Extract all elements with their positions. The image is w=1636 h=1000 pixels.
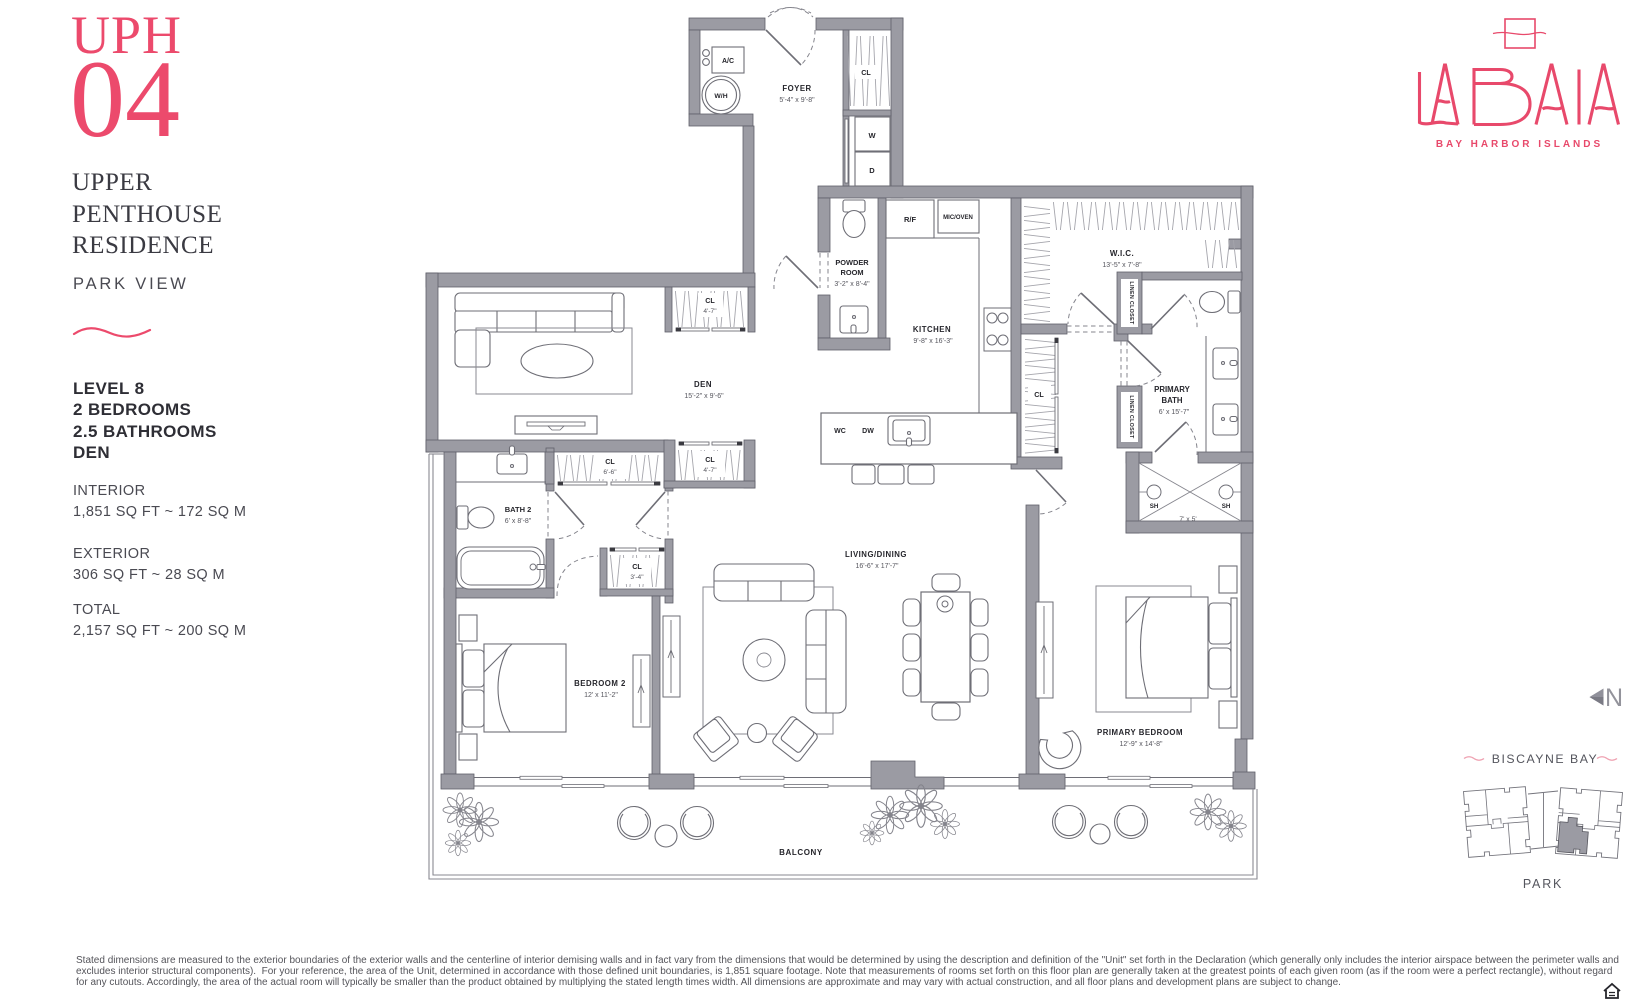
svg-text:SH: SH	[1222, 503, 1231, 510]
svg-text:4'-7": 4'-7"	[703, 467, 717, 474]
svg-text:WC: WC	[834, 428, 846, 435]
svg-text:W.I.C.: W.I.C.	[1110, 249, 1134, 258]
svg-text:FOYER: FOYER	[782, 84, 811, 93]
svg-text:CL: CL	[605, 457, 615, 466]
svg-text:13'-5" x 7'-8": 13'-5" x 7'-8"	[1102, 262, 1142, 269]
svg-text:9'-8" x 16'-3": 9'-8" x 16'-3"	[913, 338, 953, 345]
svg-text:LINEN CLOSET: LINEN CLOSET	[1128, 281, 1134, 325]
svg-text:BALCONY: BALCONY	[779, 848, 823, 857]
svg-text:PRIMARY BEDROOM: PRIMARY BEDROOM	[1097, 728, 1183, 737]
svg-text:3'-4": 3'-4"	[630, 574, 644, 581]
svg-text:PARK: PARK	[1523, 877, 1563, 891]
svg-text:KITCHEN: KITCHEN	[913, 325, 951, 334]
svg-text:3'-2" x 8'-4": 3'-2" x 8'-4"	[834, 281, 870, 288]
svg-text:12'-9" x 14'-8": 12'-9" x 14'-8"	[1119, 741, 1163, 748]
svg-text:LIVING/DINING: LIVING/DINING	[845, 550, 907, 559]
svg-text:6'-6": 6'-6"	[603, 469, 617, 476]
svg-text:PRIMARY: PRIMARY	[1154, 385, 1190, 394]
svg-text:BATH: BATH	[1161, 396, 1182, 405]
svg-text:12' x 11'-2": 12' x 11'-2"	[584, 692, 618, 699]
svg-text:15'-2" x 9'-6": 15'-2" x 9'-6"	[684, 393, 724, 400]
svg-text:W/H: W/H	[714, 93, 727, 100]
svg-text:LINEN CLOSET: LINEN CLOSET	[1128, 395, 1134, 439]
svg-text:N: N	[1605, 684, 1623, 712]
svg-text:4'-7": 4'-7"	[703, 308, 717, 315]
svg-text:CL: CL	[705, 296, 715, 305]
svg-text:6' x 8'-8": 6' x 8'-8"	[505, 518, 532, 525]
svg-text:6' x 15'-7": 6' x 15'-7"	[1159, 409, 1190, 416]
svg-text:D: D	[869, 166, 875, 175]
svg-text:BEDROOM 2: BEDROOM 2	[574, 679, 626, 688]
svg-text:CL: CL	[1034, 390, 1044, 399]
svg-text:7' x 5': 7' x 5'	[1179, 516, 1196, 523]
svg-text:DW: DW	[862, 428, 874, 435]
svg-text:ROOM: ROOM	[841, 268, 864, 277]
svg-text:BATH 2: BATH 2	[505, 505, 532, 514]
svg-text:MIC/OVEN: MIC/OVEN	[943, 215, 973, 221]
svg-text:POWDER: POWDER	[835, 258, 869, 267]
svg-text:A/C: A/C	[722, 58, 734, 65]
svg-text:CL: CL	[705, 455, 715, 464]
svg-text:5'-4" x 9'-8": 5'-4" x 9'-8"	[779, 97, 815, 104]
svg-text:SH: SH	[1150, 503, 1159, 510]
svg-text:R/F: R/F	[904, 215, 917, 224]
svg-text:DEN: DEN	[694, 380, 712, 389]
svg-text:CL: CL	[861, 68, 871, 77]
svg-text:BISCAYNE BAY: BISCAYNE BAY	[1492, 752, 1598, 766]
svg-text:W: W	[868, 131, 876, 140]
svg-text:CL: CL	[632, 562, 642, 571]
svg-text:16'-6" x 17'-7": 16'-6" x 17'-7"	[855, 563, 899, 570]
